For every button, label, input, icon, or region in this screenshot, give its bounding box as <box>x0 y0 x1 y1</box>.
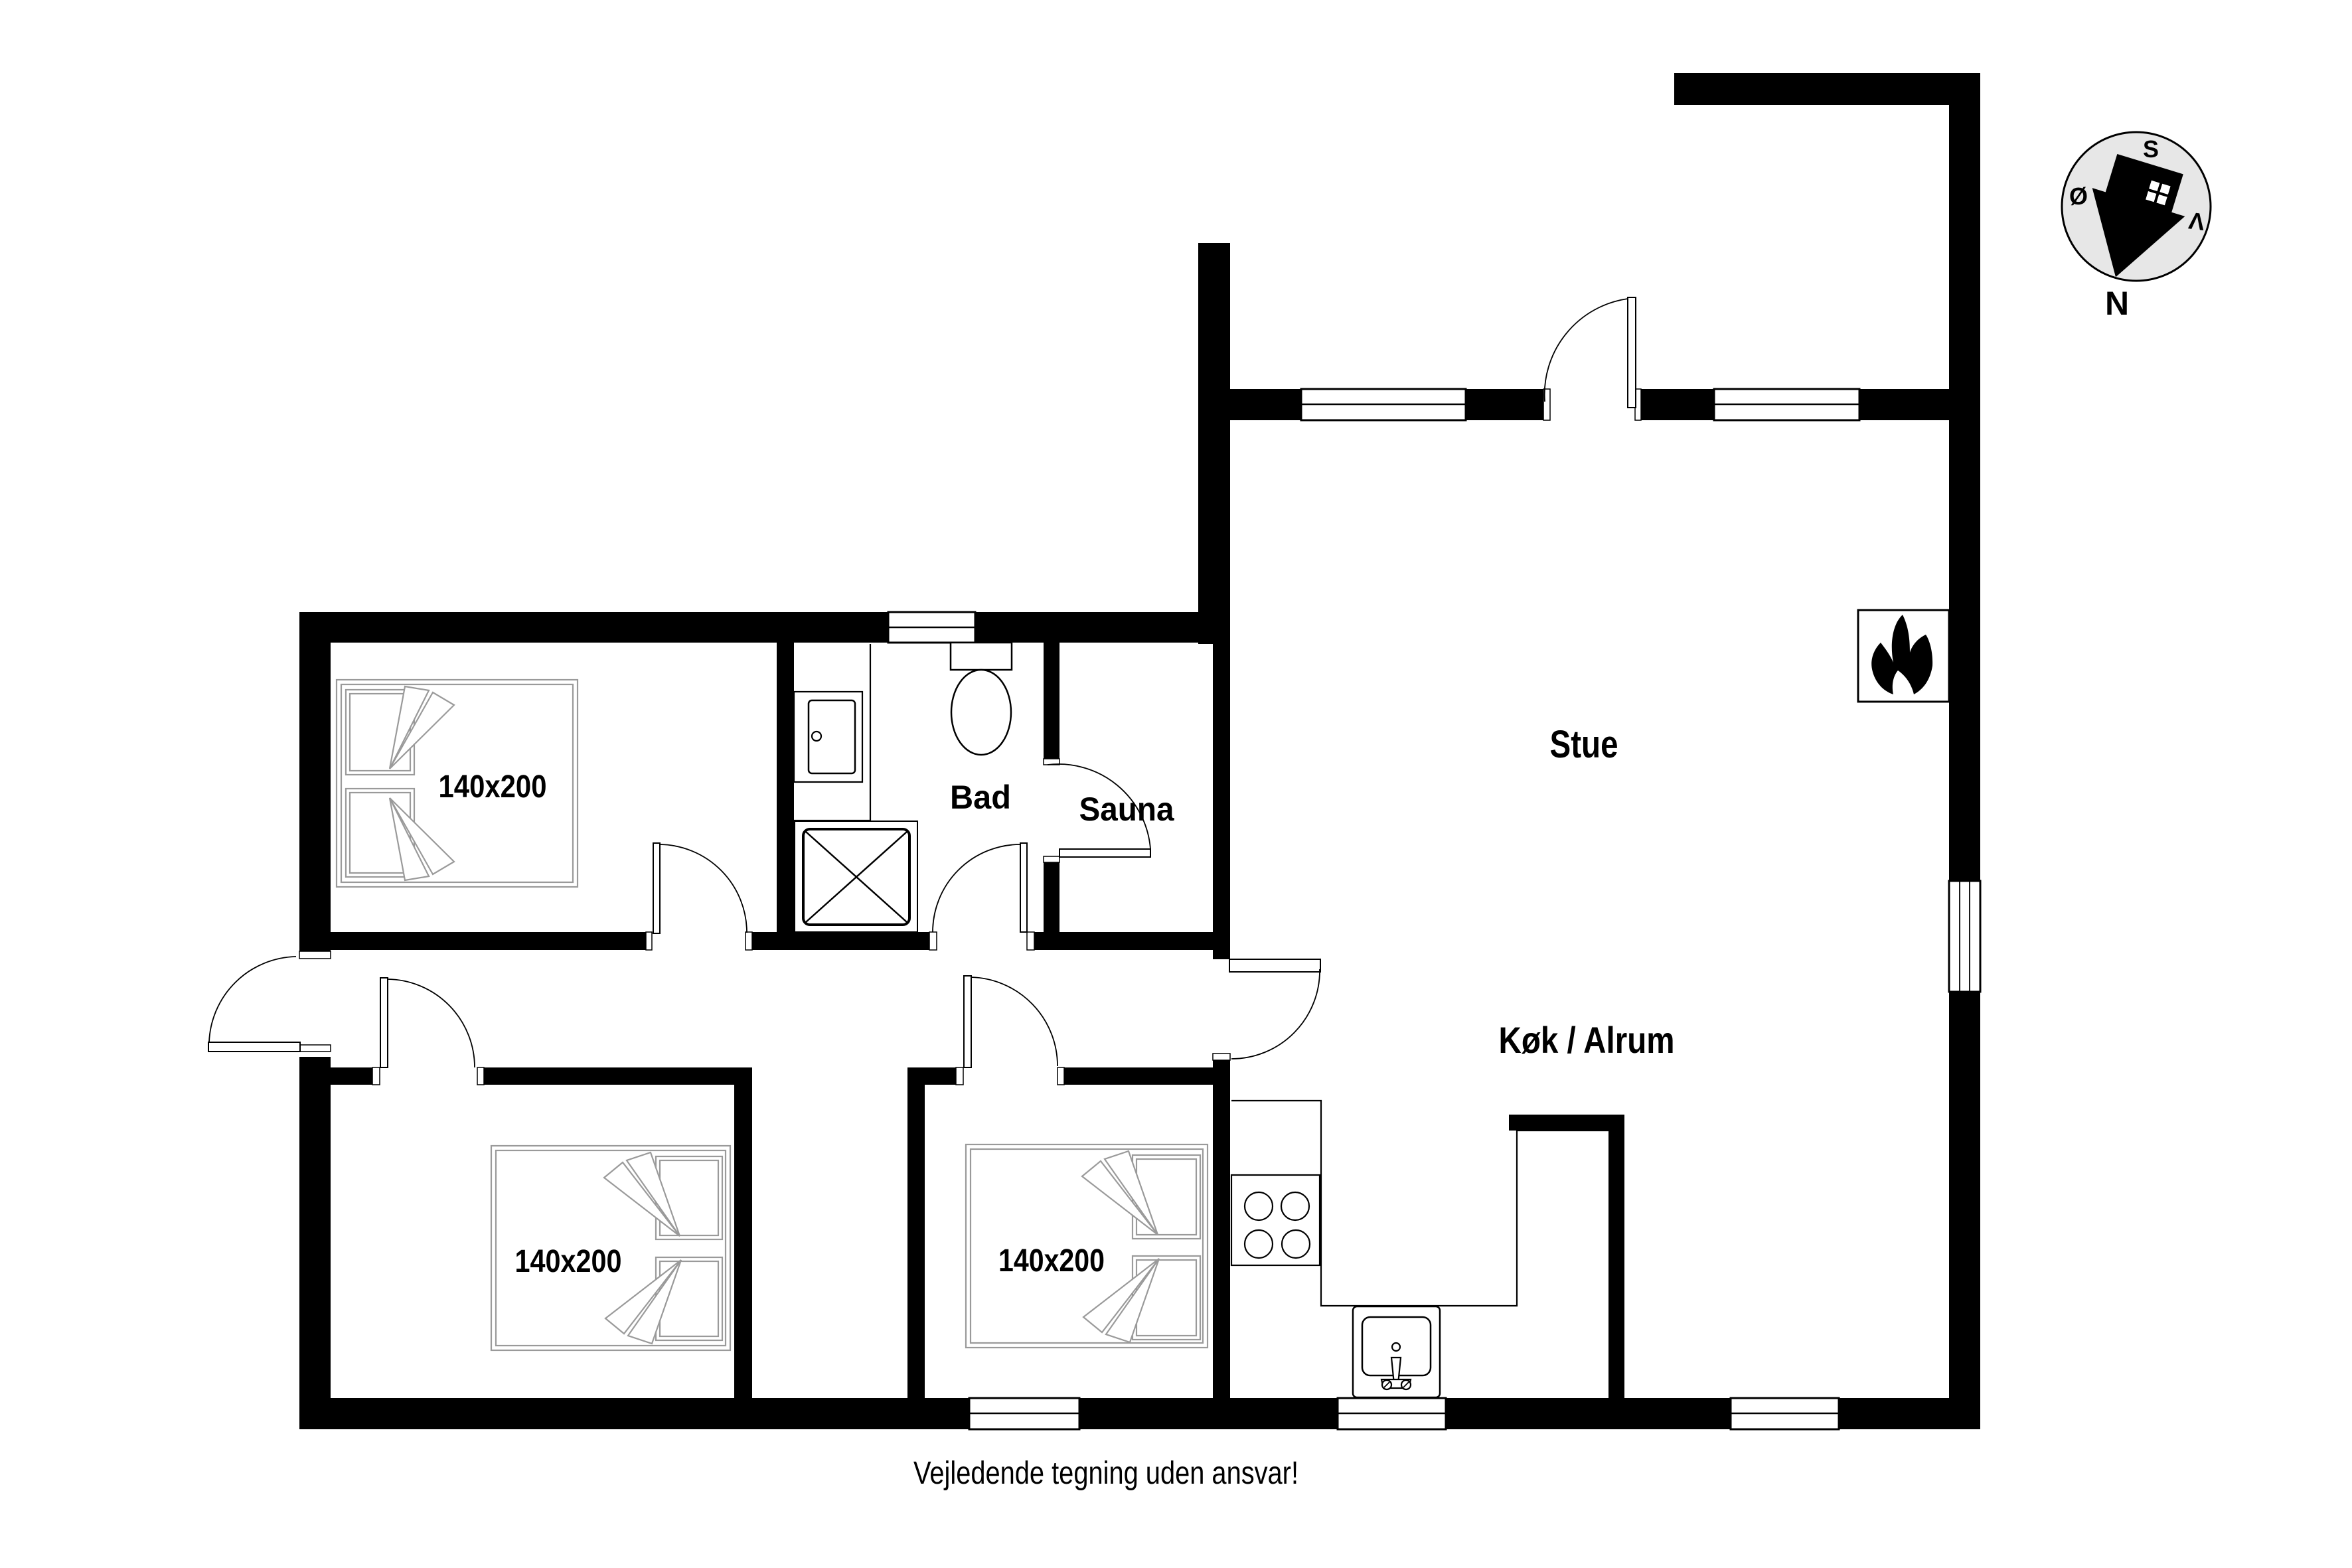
svg-text:Bad: Bad <box>950 779 1011 816</box>
svg-text:Ø: Ø <box>2069 183 2088 210</box>
svg-text:N: N <box>2105 285 2129 322</box>
svg-text:140x200: 140x200 <box>439 769 547 805</box>
svg-text:140x200: 140x200 <box>515 1244 622 1279</box>
svg-text:Stue: Stue <box>1550 723 1618 766</box>
svg-text:Sauna: Sauna <box>1079 791 1175 828</box>
svg-text:Køk / Alrum: Køk / Alrum <box>1499 1019 1675 1061</box>
svg-text:Vejledende tegning uden ansvar: Vejledende tegning uden ansvar! <box>913 1456 1298 1491</box>
svg-text:140x200: 140x200 <box>998 1243 1105 1279</box>
svg-text:S: S <box>2143 135 2159 163</box>
svg-text:V: V <box>2187 207 2207 236</box>
